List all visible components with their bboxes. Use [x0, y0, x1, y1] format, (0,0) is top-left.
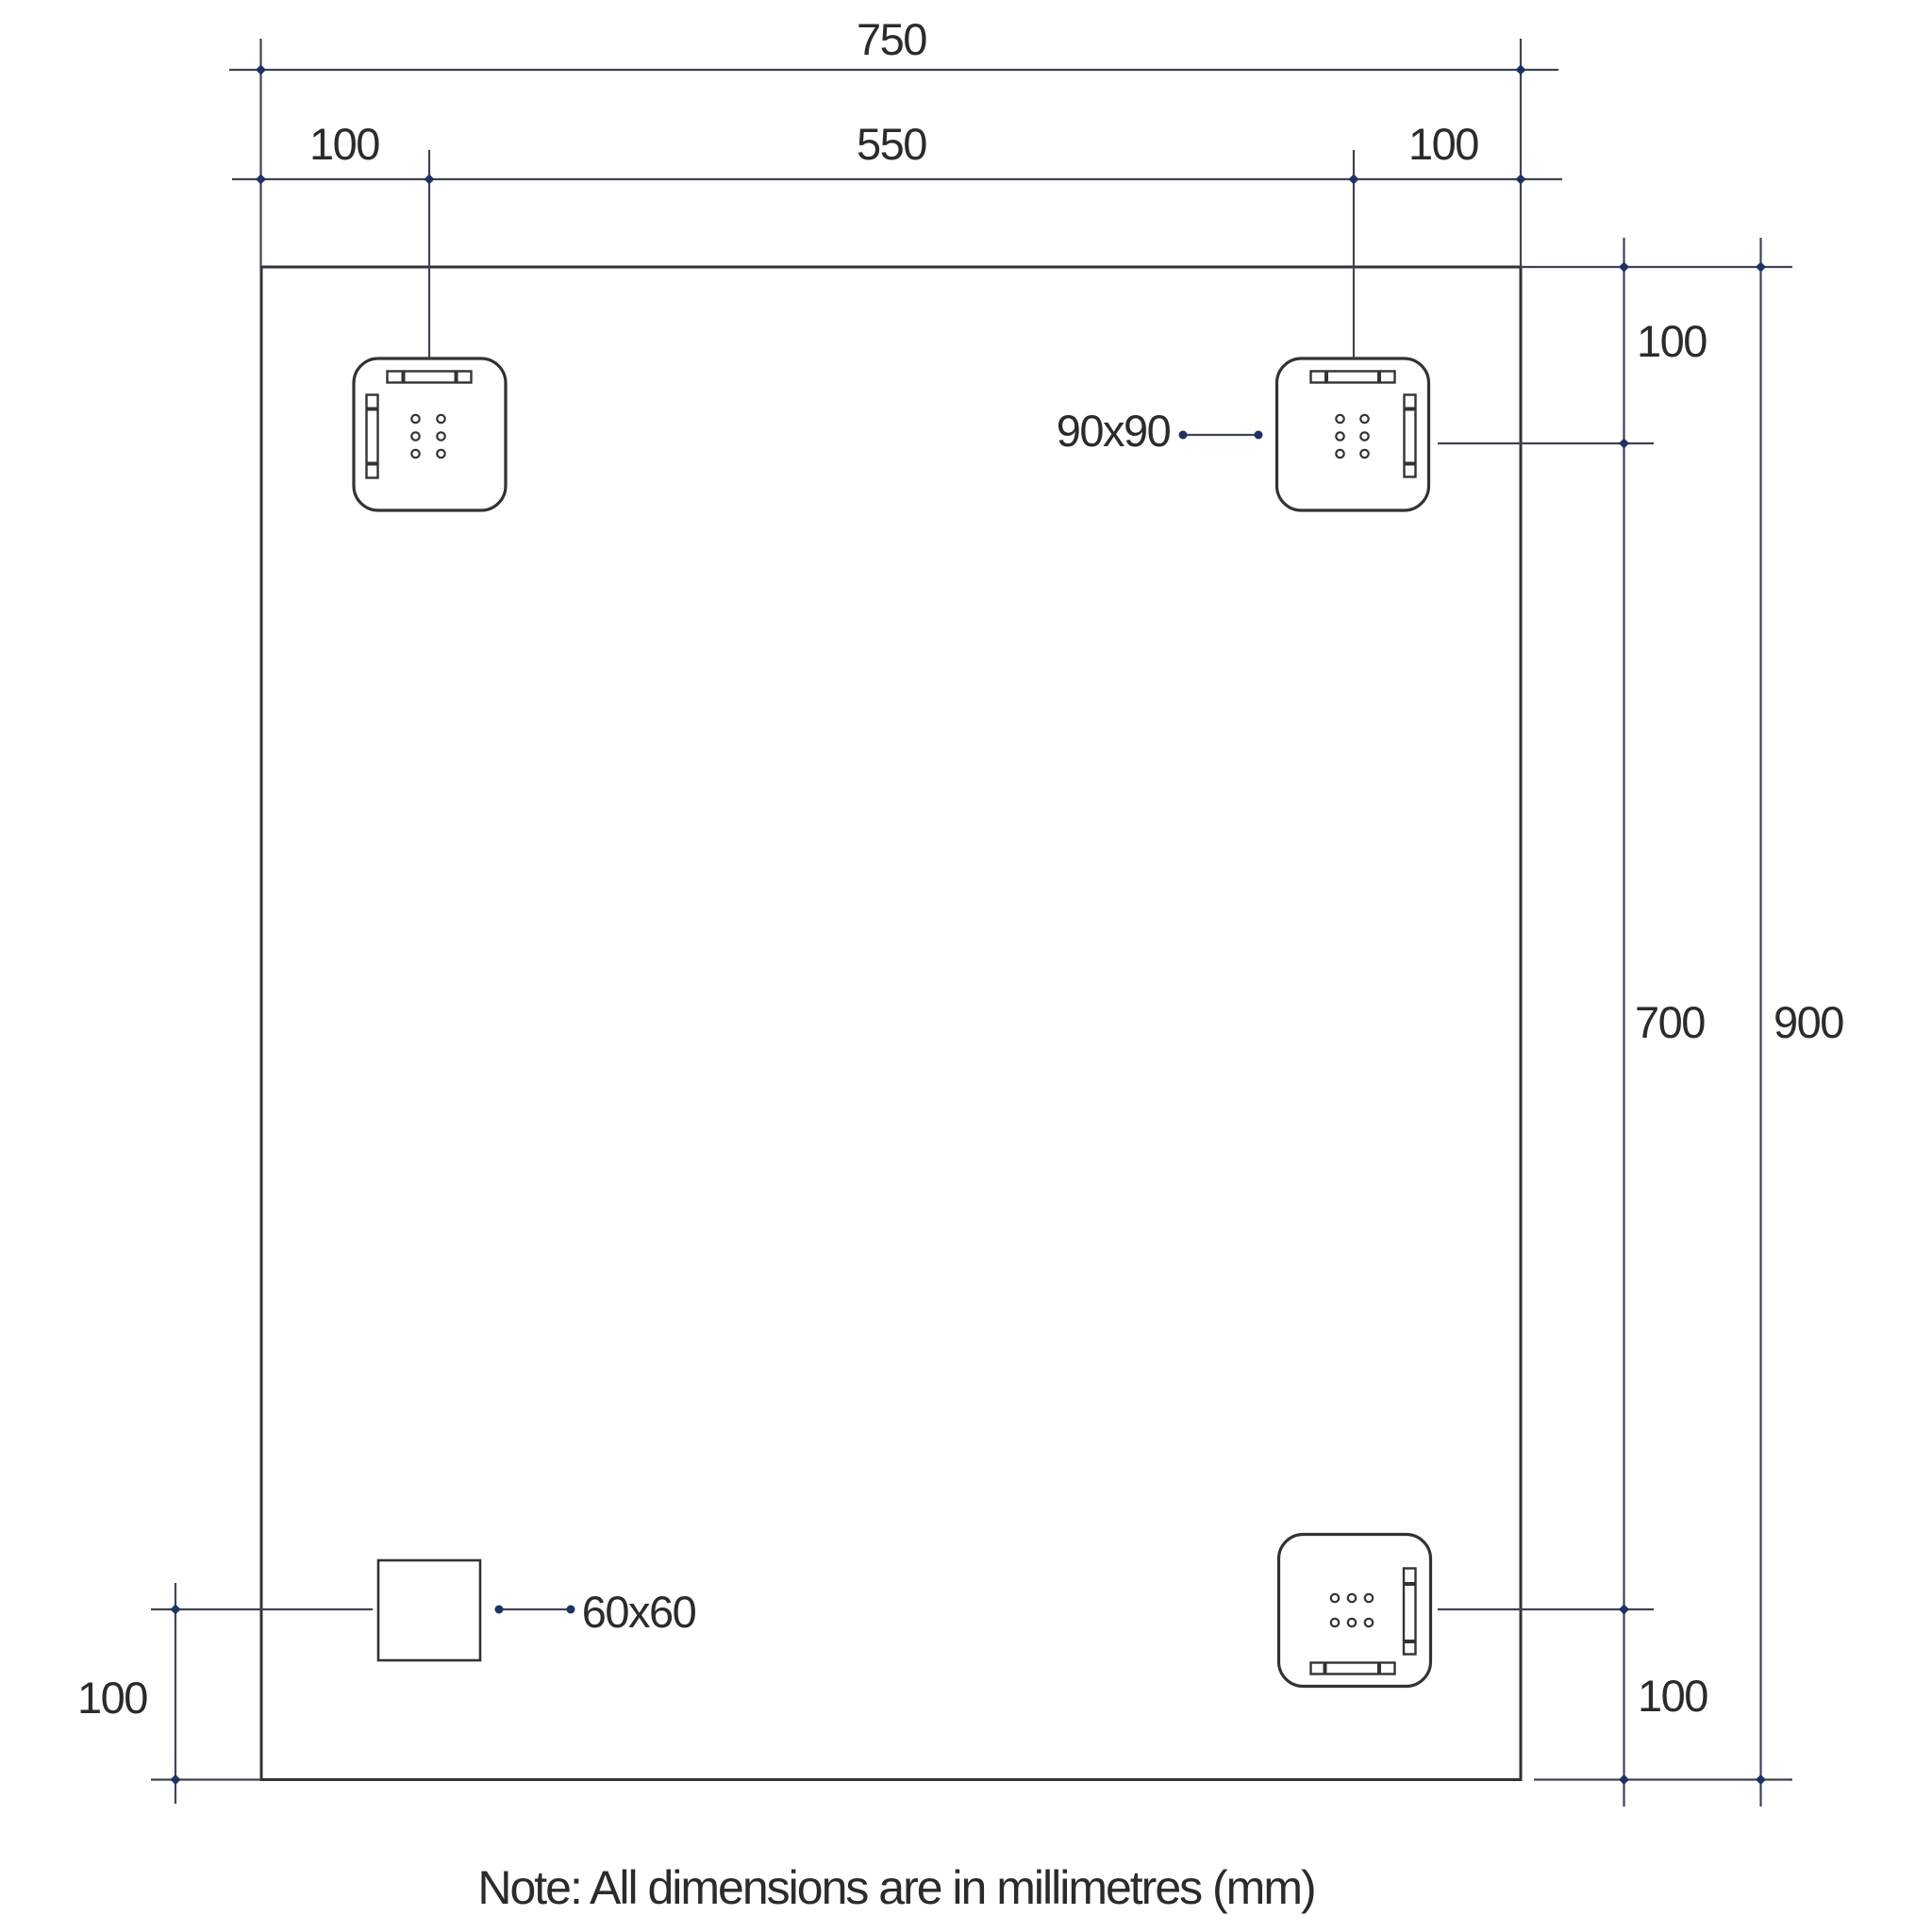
svg-text:90x90: 90x90	[1057, 406, 1171, 456]
svg-text:100: 100	[1408, 119, 1478, 169]
svg-text:100: 100	[1638, 1671, 1707, 1721]
svg-text:900: 900	[1774, 997, 1843, 1047]
svg-text:60x60: 60x60	[582, 1587, 696, 1637]
svg-text:550: 550	[857, 119, 926, 169]
svg-text:Note: All dimensions are in mi: Note: All dimensions are in millimetres …	[477, 1861, 1314, 1914]
svg-text:700: 700	[1635, 997, 1705, 1047]
svg-text:100: 100	[77, 1673, 147, 1723]
svg-text:750: 750	[857, 14, 926, 64]
svg-text:100: 100	[1637, 316, 1707, 366]
svg-text:100: 100	[309, 119, 379, 169]
